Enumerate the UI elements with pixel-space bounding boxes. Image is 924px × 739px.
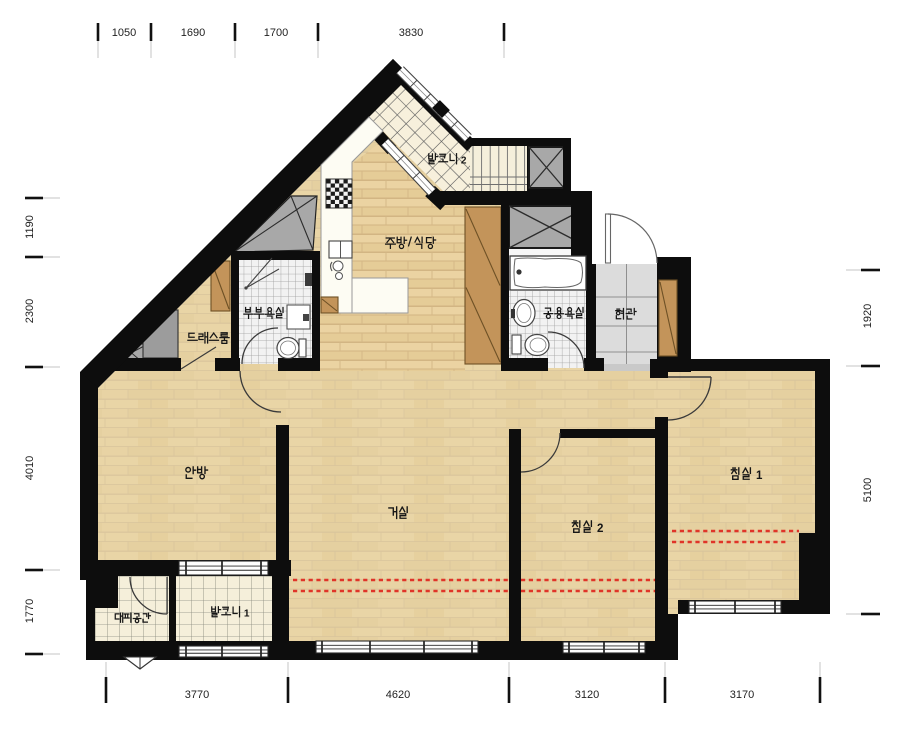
svg-text:3830: 3830 xyxy=(399,27,423,39)
svg-text:1190: 1190 xyxy=(24,215,36,239)
svg-text:3170: 3170 xyxy=(730,689,754,701)
svg-text:1: 1 xyxy=(244,608,250,619)
svg-text:1050: 1050 xyxy=(112,27,136,39)
svg-text:2: 2 xyxy=(597,523,603,535)
svg-text:2: 2 xyxy=(461,155,467,166)
svg-text:1920: 1920 xyxy=(862,304,874,328)
svg-text:3770: 3770 xyxy=(185,689,209,701)
svg-text:1770: 1770 xyxy=(24,599,36,623)
svg-text:1690: 1690 xyxy=(181,27,205,39)
svg-text:3120: 3120 xyxy=(575,689,599,701)
svg-text:1: 1 xyxy=(756,470,763,482)
svg-text:4620: 4620 xyxy=(386,689,410,701)
svg-text:1700: 1700 xyxy=(264,27,288,39)
svg-text:5100: 5100 xyxy=(862,478,874,502)
svg-text:4010: 4010 xyxy=(24,456,36,480)
svg-text:2300: 2300 xyxy=(24,299,36,323)
